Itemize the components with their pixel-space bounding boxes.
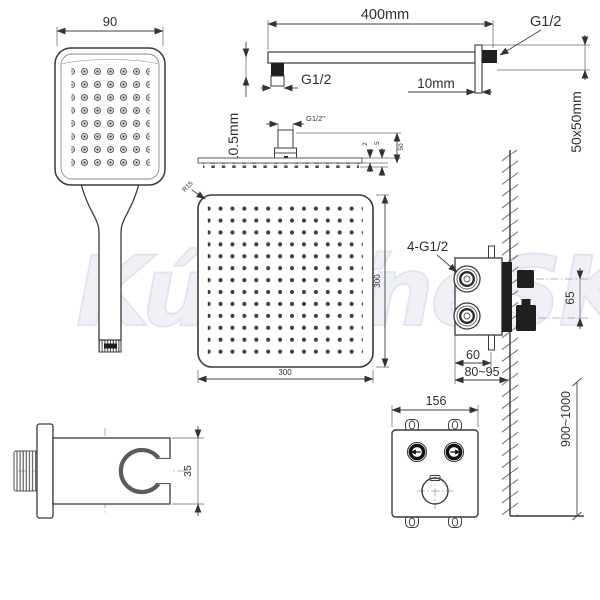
dim-hand-shower-width: 90 bbox=[103, 14, 117, 29]
dim-escutcheon-size: 50x50mm bbox=[568, 91, 584, 152]
overhead-shower-front-view: R15 300 300 bbox=[181, 180, 389, 383]
dim-arm-drop: 10.5mm bbox=[225, 113, 241, 164]
wall-outlet-holder-view: 35 bbox=[14, 424, 204, 518]
dim-head-width: 300 bbox=[278, 368, 292, 377]
dim-connector-height: 50 bbox=[398, 143, 405, 151]
dim-arm-length: 400mm bbox=[361, 7, 409, 23]
wall-section bbox=[502, 150, 584, 516]
valve-outlet-top bbox=[517, 270, 534, 288]
label-valve-connections: 4-G1/2 bbox=[407, 239, 448, 254]
label-corner-radius: R15 bbox=[181, 180, 195, 194]
panel-button-right bbox=[445, 443, 464, 462]
dim-escutcheon-thickness: 10mm bbox=[417, 76, 455, 91]
dim-nozzle-height: 5 bbox=[374, 141, 381, 145]
label-arm-head-thread: G1/2 bbox=[301, 71, 332, 87]
dim-outlet-spacing: 65 bbox=[563, 291, 577, 305]
dim-plate-thickness: 2 bbox=[362, 142, 369, 146]
panel-button-left bbox=[408, 443, 427, 462]
technical-drawing-sheet: KúpeľneSK bbox=[0, 0, 600, 600]
arm-tube bbox=[268, 52, 475, 63]
holder-flange bbox=[37, 424, 53, 518]
shower-set-drawing: 90 400mm G1/2 10.5mm bbox=[0, 0, 600, 600]
mixer-valve-side-view: 4-G1/2 65 60 80~95 bbox=[407, 239, 588, 384]
dim-installation-height: 900~1000 bbox=[559, 391, 573, 447]
valve-outlet-bottom bbox=[516, 305, 536, 331]
control-panel-front-view: 156 bbox=[392, 394, 478, 528]
holder-body bbox=[53, 438, 170, 504]
dim-valve-width: 60 bbox=[466, 348, 480, 362]
valve-knob-top bbox=[454, 266, 480, 292]
label-head-thread: G1/2" bbox=[306, 114, 325, 123]
head-nozzle-grid bbox=[208, 203, 363, 358]
arm-escutcheon bbox=[475, 45, 482, 93]
dim-holder-height: 35 bbox=[182, 465, 194, 477]
hand-shower-nozzles bbox=[72, 66, 150, 170]
hand-shower-front-view: 90 bbox=[55, 14, 165, 352]
installation-height-dimension: 900~1000 bbox=[559, 378, 582, 520]
dim-panel-width: 156 bbox=[426, 394, 447, 408]
head-plate-side bbox=[198, 158, 362, 163]
dim-head-height: 300 bbox=[373, 274, 382, 288]
holder-thread bbox=[14, 451, 37, 491]
label-arm-wall-thread: G1/2 bbox=[530, 14, 561, 30]
dim-install-depth: 80~95 bbox=[464, 365, 499, 379]
hand-shower-handle bbox=[80, 180, 140, 340]
valve-knob-bottom bbox=[454, 303, 480, 329]
